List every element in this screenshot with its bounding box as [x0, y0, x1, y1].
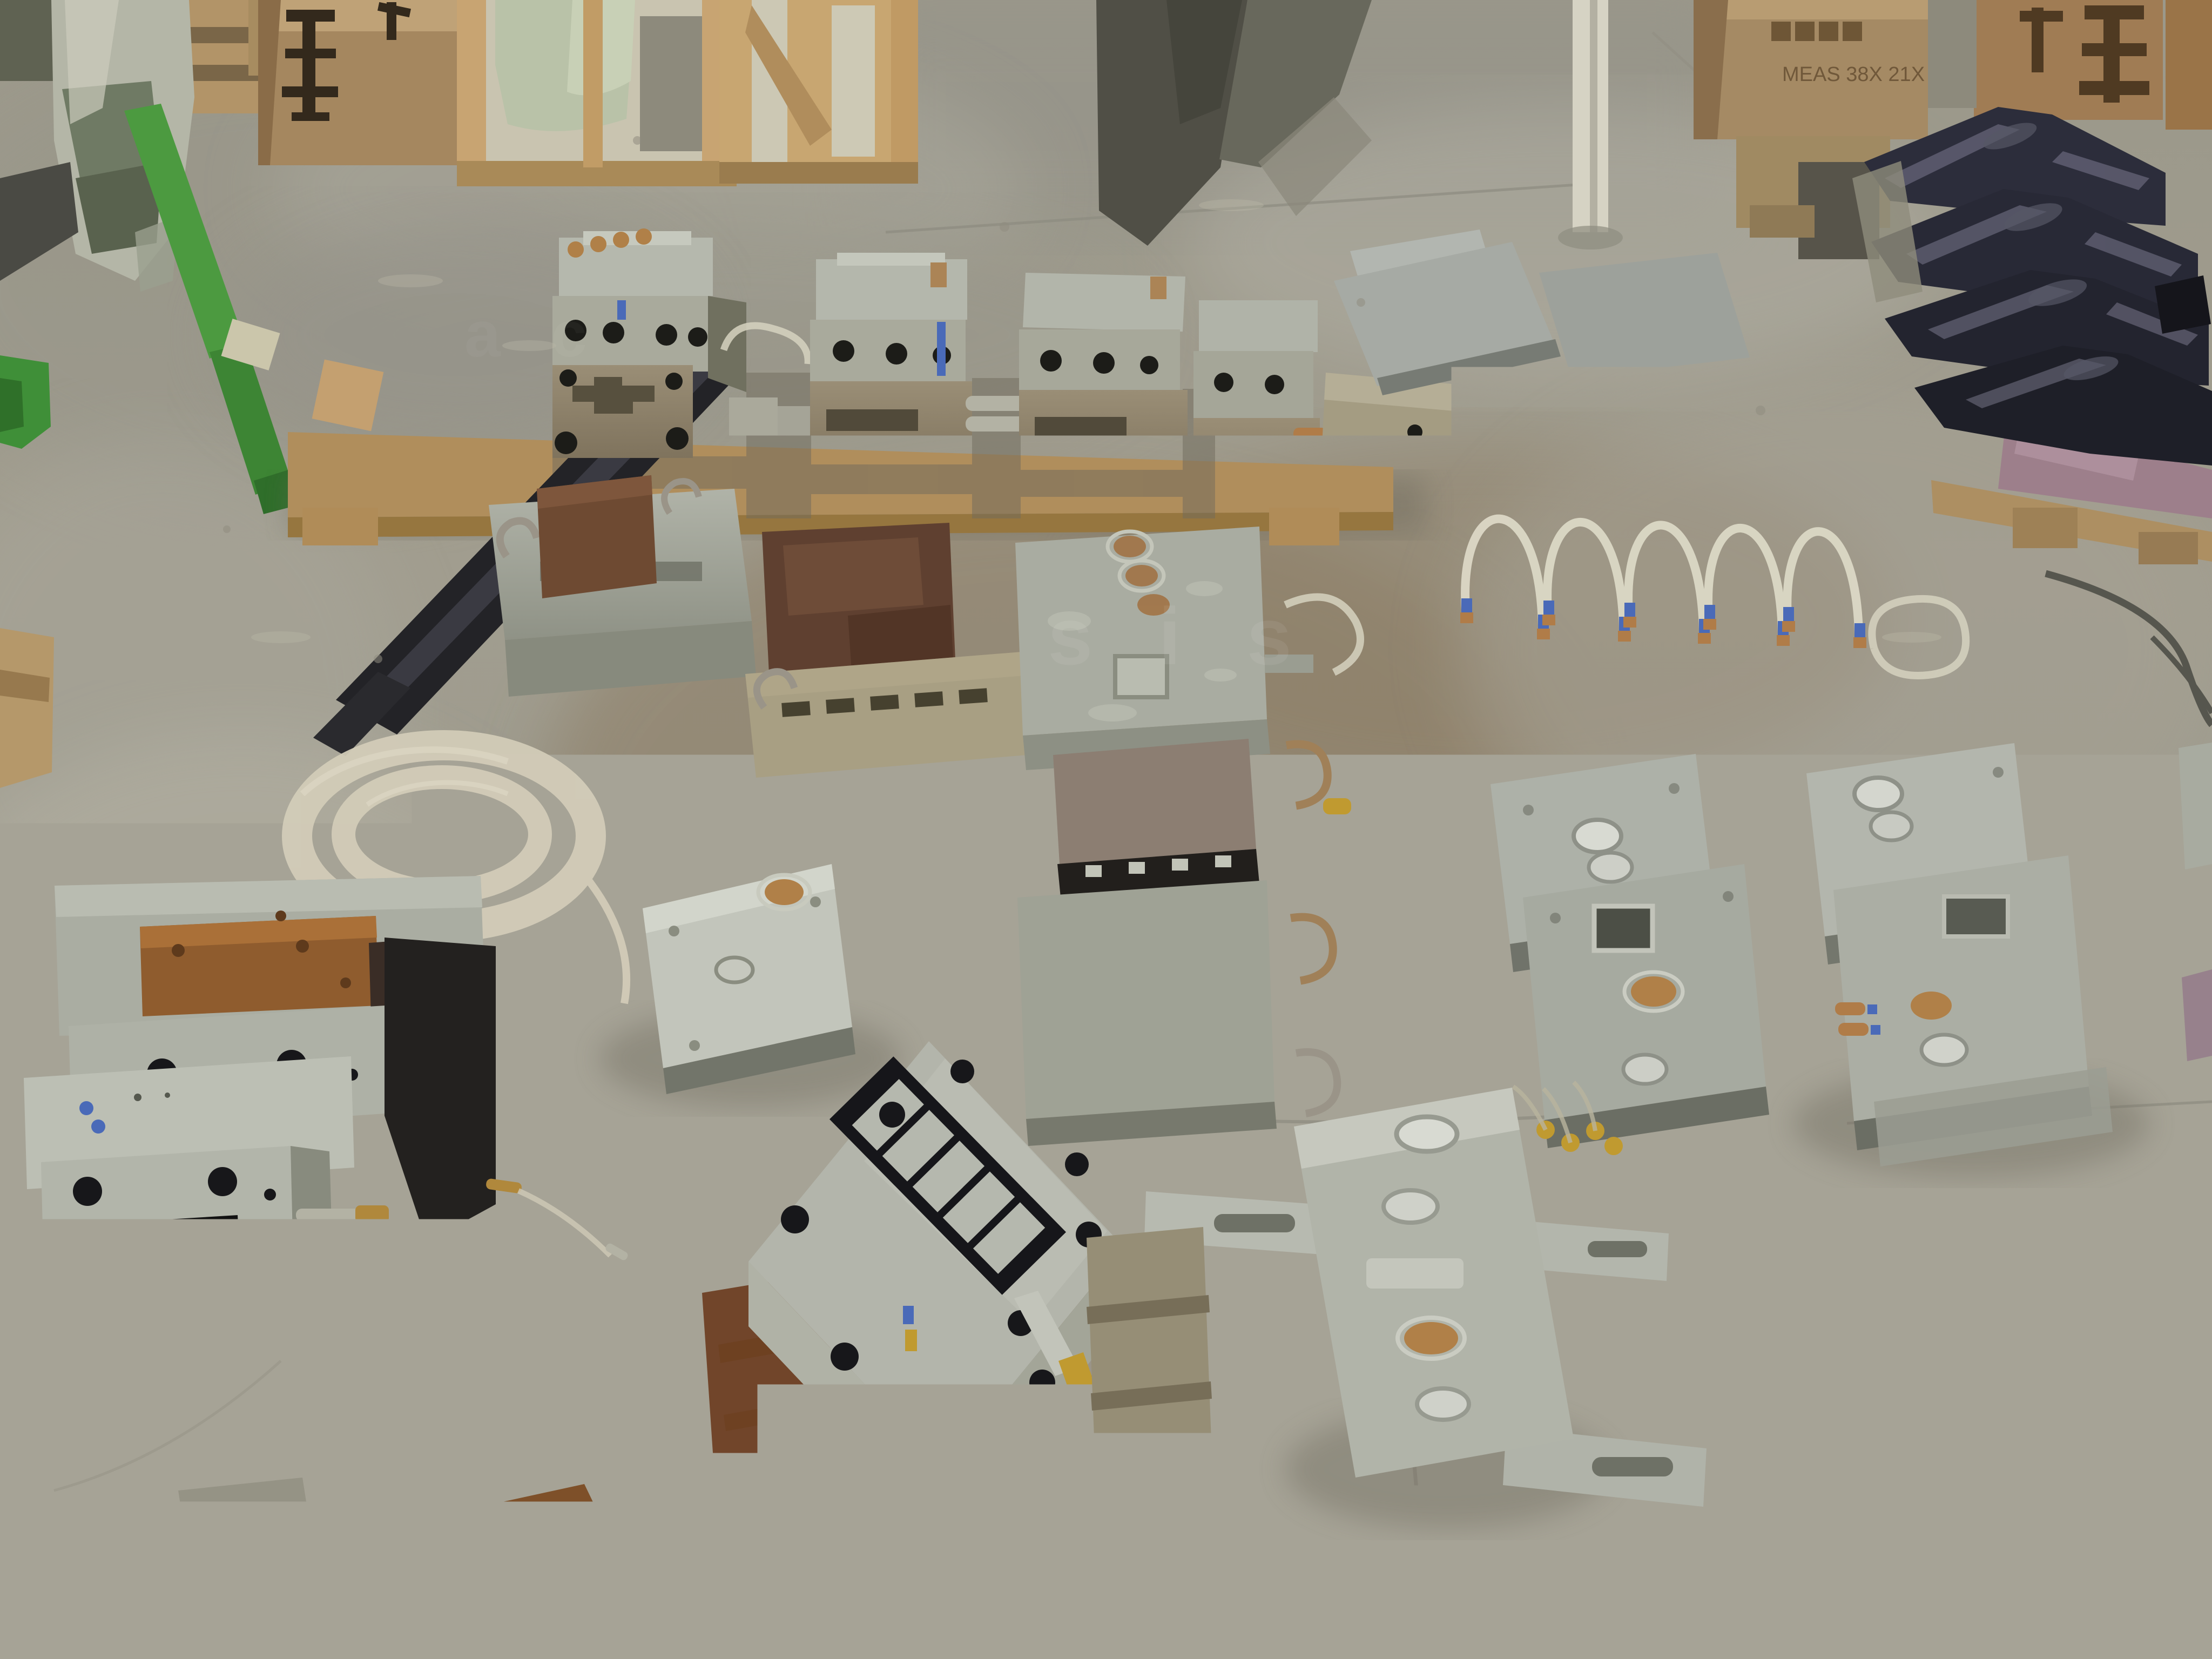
- svg-text:a c: a c: [464, 298, 603, 370]
- svg-text:S S: S S: [1166, 1087, 1328, 1165]
- svg-text:s i s: s i s: [1048, 591, 1313, 682]
